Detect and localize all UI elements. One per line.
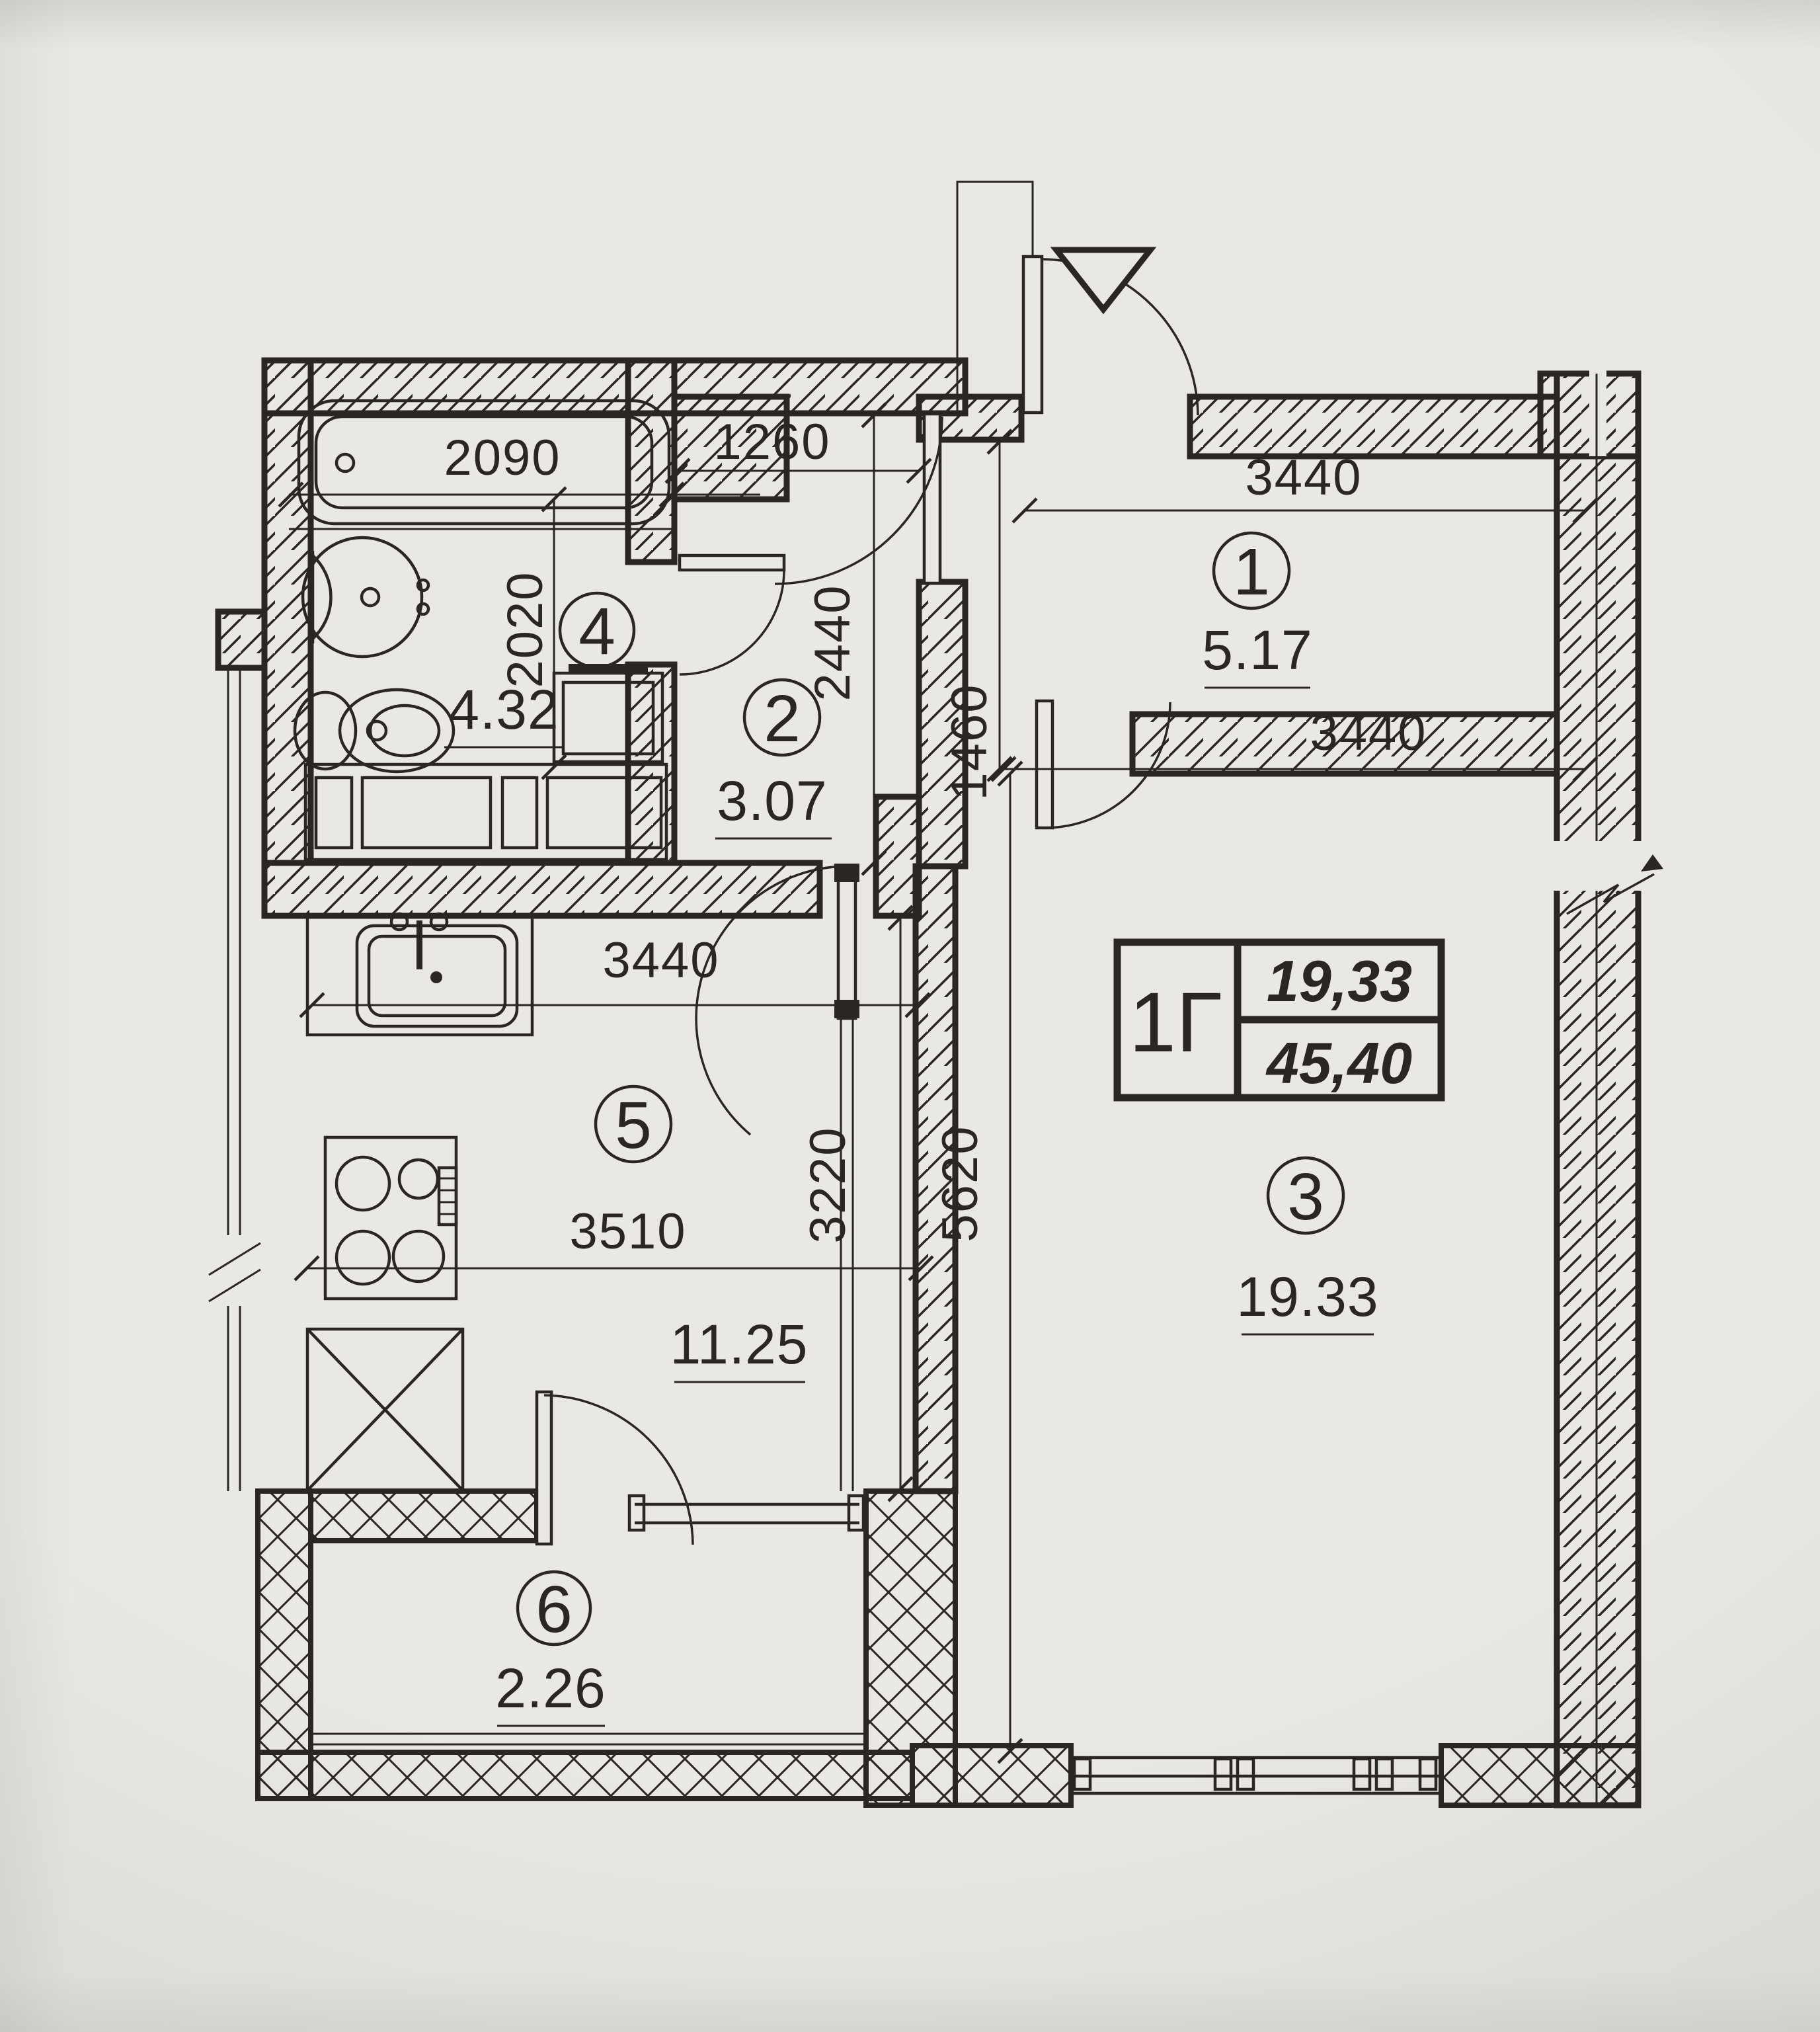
dim-kitchen-width: 3440 <box>602 932 719 989</box>
kitchen-door-leaf <box>838 866 855 1018</box>
title-block-total-area: 45,40 <box>1265 1030 1412 1096</box>
room-5-number: 5 <box>615 1088 652 1162</box>
wall-bathroom-bottom <box>264 863 820 916</box>
wall-left-pilaster <box>218 612 264 668</box>
dim-room2-depth: 2440 <box>805 584 861 701</box>
room-2-number: 2 <box>764 682 801 756</box>
dim-corridor-width: 1460 <box>941 683 998 800</box>
dim-room2-width: 1260 <box>713 414 830 470</box>
room-2-area: 3.07 <box>717 770 828 832</box>
room-3-area: 19.33 <box>1236 1266 1378 1328</box>
livingroom-door-leaf <box>1037 701 1052 828</box>
bathroom-door-leaf <box>680 555 784 570</box>
dim-room3-depth: 5620 <box>932 1125 988 1242</box>
room-1-number: 1 <box>1233 535 1270 609</box>
title-block-living-area: 19,33 <box>1267 948 1412 1014</box>
room-3-number: 3 <box>1287 1160 1324 1234</box>
room-4-area: 4.32 <box>448 678 559 741</box>
dim-bathtub-width: 2090 <box>444 430 561 486</box>
wall-window-stub-right <box>1441 1746 1638 1805</box>
room-6-area: 2.26 <box>495 1657 606 1719</box>
wall-window-stub-left <box>912 1746 1071 1805</box>
dim-room3-width: 3440 <box>1310 705 1427 761</box>
entrance-door-leaf <box>1023 257 1042 413</box>
floor-plan-photo: 2090 1260 3440 3440 3440 3510 2020 2440 … <box>0 0 1820 2032</box>
room-4-number: 4 <box>578 594 615 669</box>
title-block-code: 1Г <box>1129 975 1222 1070</box>
room-1-area: 5.17 <box>1202 619 1313 681</box>
room2-door-leaf <box>924 414 940 583</box>
dim-kitchen-depth: 3220 <box>800 1126 856 1243</box>
kitchen-sink-drain <box>430 971 442 983</box>
kitchen-door-cap-bottom <box>834 1000 859 1018</box>
kitchen-tap-stem <box>416 920 422 969</box>
dim-bathroom-depth: 2020 <box>497 571 553 688</box>
wall-balcony-parapet <box>258 1752 912 1799</box>
balcony-door-leaf <box>537 1392 551 1544</box>
wall-room1-top <box>1190 397 1557 456</box>
wall-kitchen-balcony <box>311 1491 537 1541</box>
title-block: 1Г 19,33 45,40 <box>1117 942 1441 1098</box>
room-6-number: 6 <box>535 1572 573 1646</box>
wall-break-gap <box>1554 841 1643 891</box>
room-5-area: 11.25 <box>670 1313 809 1375</box>
floor-plan-svg: 2090 1260 3440 3440 3440 3510 2020 2440 … <box>0 0 1820 2032</box>
wall-top-main <box>264 360 965 413</box>
dim-room1-width: 3440 <box>1245 450 1362 506</box>
expansion-joint-slot <box>1589 370 1606 456</box>
dim-kitchen-inner-width: 3510 <box>569 1203 686 1260</box>
